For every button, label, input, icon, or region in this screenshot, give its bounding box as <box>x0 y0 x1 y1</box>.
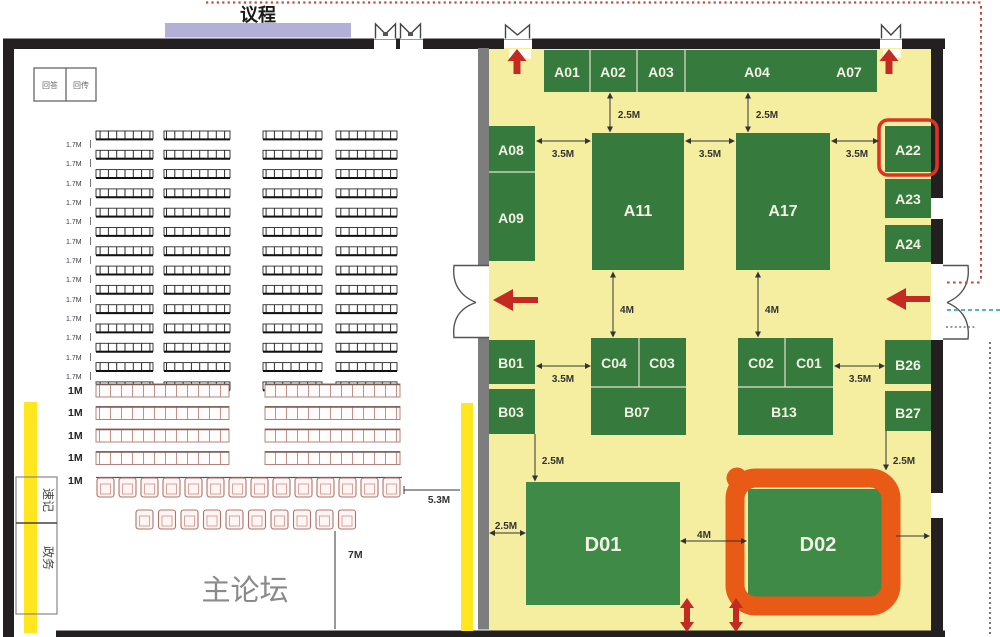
svg-text:C03: C03 <box>649 355 675 371</box>
svg-text:B07: B07 <box>624 404 650 420</box>
svg-text:A07: A07 <box>836 64 862 80</box>
svg-text:D01: D01 <box>585 534 622 556</box>
svg-text:1.7M: 1.7M <box>66 181 82 188</box>
svg-text:2.5M: 2.5M <box>756 110 778 121</box>
svg-text:B03: B03 <box>498 404 524 420</box>
svg-text:A23: A23 <box>895 191 921 207</box>
svg-text:A01: A01 <box>554 64 580 80</box>
svg-text:4M: 4M <box>697 530 711 541</box>
svg-text:C04: C04 <box>601 355 627 371</box>
svg-text:1.7M: 1.7M <box>66 355 82 362</box>
svg-text:2.5M: 2.5M <box>893 456 915 467</box>
svg-text:4M: 4M <box>765 305 779 316</box>
svg-text:3.5M: 3.5M <box>849 374 871 385</box>
svg-text:1.7M: 1.7M <box>66 297 82 304</box>
svg-text:B26: B26 <box>895 357 921 373</box>
svg-text:1M: 1M <box>68 407 83 419</box>
svg-text:速记: 速记 <box>41 488 55 512</box>
svg-text:1.7M: 1.7M <box>66 277 82 284</box>
svg-text:1M: 1M <box>68 475 83 487</box>
svg-text:B01: B01 <box>498 355 524 371</box>
svg-text:1.7M: 1.7M <box>66 258 82 265</box>
svg-text:B13: B13 <box>771 404 797 420</box>
svg-text:主论坛: 主论坛 <box>201 574 288 607</box>
svg-text:3.5M: 3.5M <box>552 374 574 385</box>
svg-text:A24: A24 <box>895 236 921 252</box>
svg-text:A04: A04 <box>744 64 770 80</box>
svg-text:A03: A03 <box>648 64 674 80</box>
svg-text:C02: C02 <box>748 355 774 371</box>
svg-text:3.5M: 3.5M <box>699 149 721 160</box>
svg-text:7M: 7M <box>348 549 363 561</box>
svg-text:2.5M: 2.5M <box>618 110 640 121</box>
svg-text:1.7M: 1.7M <box>66 374 82 381</box>
svg-text:C01: C01 <box>796 355 822 371</box>
svg-text:A02: A02 <box>600 64 626 80</box>
svg-text:1M: 1M <box>68 430 83 442</box>
svg-text:A17: A17 <box>768 203 797 220</box>
svg-text:1M: 1M <box>68 385 83 397</box>
svg-text:1M: 1M <box>68 452 83 464</box>
svg-text:1.7M: 1.7M <box>66 219 82 226</box>
svg-text:1.7M: 1.7M <box>66 239 82 246</box>
svg-text:B27: B27 <box>895 405 921 421</box>
svg-text:A08: A08 <box>498 142 524 158</box>
svg-text:1.7M: 1.7M <box>66 316 82 323</box>
svg-text:1.7M: 1.7M <box>66 335 82 342</box>
svg-text:1.7M: 1.7M <box>66 200 82 207</box>
svg-text:4M: 4M <box>620 305 634 316</box>
svg-text:政务: 政务 <box>41 546 56 570</box>
svg-text:1.7M: 1.7M <box>66 161 82 168</box>
svg-text:3.5M: 3.5M <box>552 149 574 160</box>
svg-text:2.5M: 2.5M <box>495 521 517 532</box>
svg-text:5.3M: 5.3M <box>428 495 450 506</box>
svg-text:1.7M: 1.7M <box>66 142 82 149</box>
svg-text:3.5M: 3.5M <box>846 149 868 160</box>
svg-text:回传: 回传 <box>73 80 89 90</box>
svg-text:议程: 议程 <box>240 5 276 25</box>
svg-text:A11: A11 <box>624 203 653 220</box>
svg-text:A22: A22 <box>895 142 921 158</box>
svg-text:A09: A09 <box>498 210 524 226</box>
svg-text:2.5M: 2.5M <box>542 456 564 467</box>
svg-text:回答: 回答 <box>42 80 58 90</box>
svg-text:D02: D02 <box>800 534 837 556</box>
